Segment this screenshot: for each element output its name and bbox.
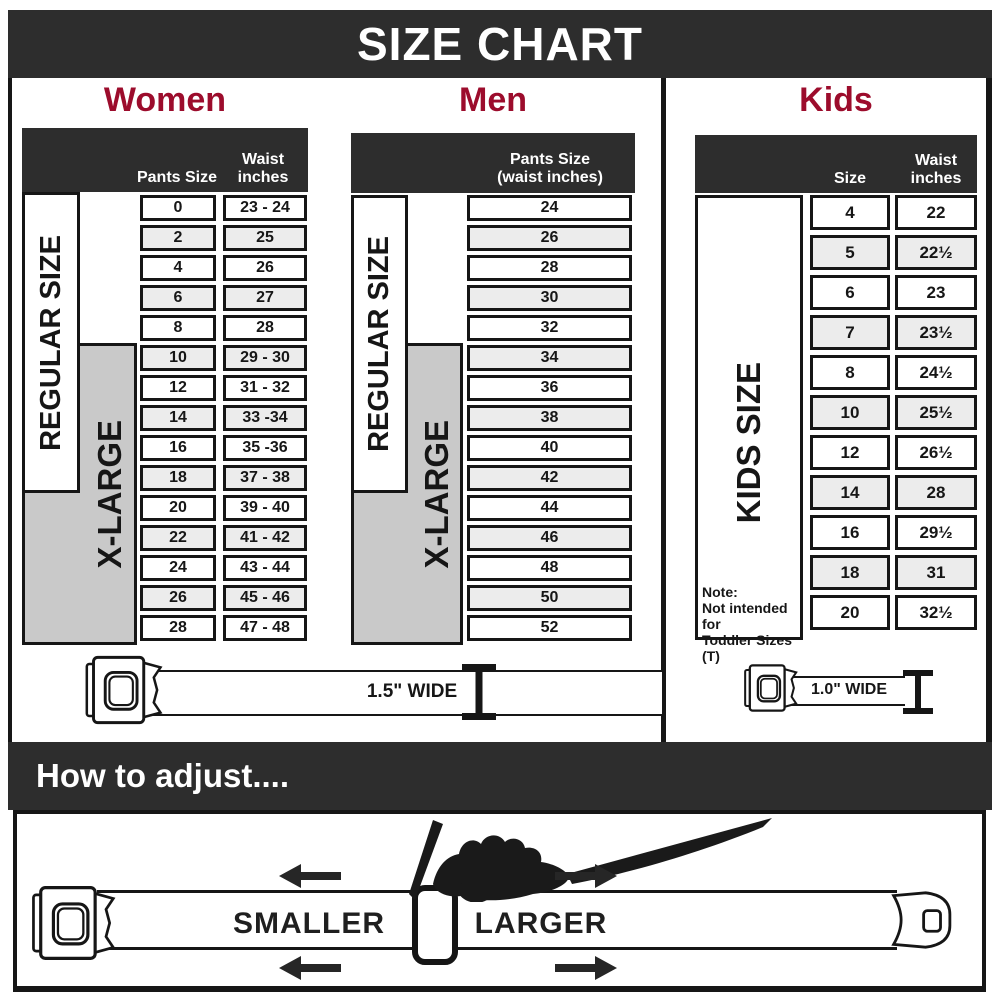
size-cell: 23 - 24 xyxy=(223,195,307,221)
size-cell: 18 xyxy=(140,465,216,491)
kids-size-label: KIDS SIZE xyxy=(730,362,768,523)
women-size-table: 023 - 242254266278281029 - 301231 - 3214… xyxy=(140,195,307,645)
size-cell: 2 xyxy=(140,225,216,251)
size-cell: 6 xyxy=(810,275,890,310)
size-cell: 20 xyxy=(140,495,216,521)
size-cell: 14 xyxy=(810,475,890,510)
men-size-table: 242628303234363840424446485052 xyxy=(467,195,632,645)
men-col-header: Pants Size (waist inches) xyxy=(470,151,630,187)
size-cell: 14 xyxy=(140,405,216,431)
size-cell: 10 xyxy=(810,395,890,430)
size-cell: 12 xyxy=(810,435,890,470)
kids-heading: Kids xyxy=(695,80,977,120)
women-heading: Women xyxy=(22,80,308,120)
size-cell: 10 xyxy=(140,345,216,371)
size-cell: 28 xyxy=(140,615,216,641)
size-cell: 22½ xyxy=(895,235,977,270)
size-cell: 41 - 42 xyxy=(223,525,307,551)
women-col2-header: Waist inches xyxy=(223,151,303,187)
size-cell: 26 xyxy=(467,225,632,251)
size-cell: 23½ xyxy=(895,315,977,350)
size-cell: 24 xyxy=(467,195,632,221)
men-regular-label: REGULAR SIZE xyxy=(363,236,396,452)
men-table-header: Pants Size (waist inches) xyxy=(351,133,635,193)
size-cell: 48 xyxy=(467,555,632,581)
size-cell: 44 xyxy=(467,495,632,521)
size-cell: 30 xyxy=(467,285,632,311)
page-title: SIZE CHART xyxy=(8,10,992,78)
size-cell: 25½ xyxy=(895,395,977,430)
size-cell: 24 xyxy=(140,555,216,581)
size-cell: 22 xyxy=(140,525,216,551)
size-cell: 28 xyxy=(223,315,307,341)
size-cell: 50 xyxy=(467,585,632,611)
kids-table-header: Size Waist inches xyxy=(695,135,977,193)
men-heading: Men xyxy=(351,80,635,120)
size-cell: 28 xyxy=(895,475,977,510)
size-cell: 52 xyxy=(467,615,632,641)
kids-belt-width-label: 1.0" WIDE xyxy=(799,681,899,699)
size-cell: 5 xyxy=(810,235,890,270)
size-cell: 28 xyxy=(467,255,632,281)
seatbelt-buckle-icon xyxy=(744,663,802,713)
size-cell: 23 xyxy=(895,275,977,310)
women-table-header: Pants Size Waist inches xyxy=(22,128,308,192)
kids-col1-header: Size xyxy=(810,170,890,188)
adjust-diagram: SMALLER LARGER xyxy=(13,810,986,992)
women-xlarge-label: X-LARGE xyxy=(91,420,129,569)
size-cell: 31 - 32 xyxy=(223,375,307,401)
width-measure-icon xyxy=(462,664,496,720)
size-cell: 25 xyxy=(223,225,307,251)
size-chart-image: SIZE CHART Women Men Kids Pants Size Wai… xyxy=(0,0,1000,1000)
size-cell: 4 xyxy=(140,255,216,281)
size-cell: 27 xyxy=(223,285,307,311)
size-cell: 0 xyxy=(140,195,216,221)
size-cell: 37 - 38 xyxy=(223,465,307,491)
kids-size-table: 422522½623723½824½1025½1226½14281629½183… xyxy=(810,195,977,635)
size-cell: 33 -34 xyxy=(223,405,307,431)
size-cell: 47 - 48 xyxy=(223,615,307,641)
women-regular-label: REGULAR SIZE xyxy=(35,235,68,451)
size-cell: 42 xyxy=(467,465,632,491)
size-cell: 32 xyxy=(467,315,632,341)
women-regular-box: REGULAR SIZE xyxy=(22,192,80,493)
size-cell: 29½ xyxy=(895,515,977,550)
size-cell: 29 - 30 xyxy=(223,345,307,371)
size-cell: 26 xyxy=(140,585,216,611)
kids-divider xyxy=(661,78,666,742)
larger-label: LARGER xyxy=(461,906,621,942)
size-cell: 46 xyxy=(467,525,632,551)
women-col1-header: Pants Size xyxy=(132,169,222,187)
kids-size-box: KIDS SIZE Note: Not intended for Toddler… xyxy=(695,195,803,640)
men-regular-box: REGULAR SIZE xyxy=(351,195,408,493)
size-cell: 12 xyxy=(140,375,216,401)
left-border xyxy=(8,78,12,742)
size-cell: 6 xyxy=(140,285,216,311)
arrow-right-icon xyxy=(555,955,617,981)
size-cell: 45 - 46 xyxy=(223,585,307,611)
kids-col2-header: Waist inches xyxy=(896,152,976,188)
size-cell: 32½ xyxy=(895,595,977,630)
size-cell: 20 xyxy=(810,595,890,630)
arrow-left-icon xyxy=(279,955,341,981)
width-measure-icon xyxy=(903,670,933,714)
size-cell: 26 xyxy=(223,255,307,281)
size-cell: 36 xyxy=(467,375,632,401)
size-cell: 8 xyxy=(810,355,890,390)
size-cell: 22 xyxy=(895,195,977,230)
belt-tip-icon xyxy=(881,890,955,950)
seatbelt-buckle-icon xyxy=(84,654,170,726)
adjust-heading: How to adjust.... xyxy=(8,742,992,810)
size-cell: 7 xyxy=(810,315,890,350)
size-cell: 18 xyxy=(810,555,890,590)
smaller-label: SMALLER xyxy=(229,906,389,942)
size-cell: 35 -36 xyxy=(223,435,307,461)
seatbelt-buckle-icon xyxy=(31,884,123,962)
right-border xyxy=(986,78,992,742)
size-cell: 24½ xyxy=(895,355,977,390)
size-cell: 43 - 44 xyxy=(223,555,307,581)
kids-note: Note: Not intended for Toddler Sizes (T) xyxy=(702,584,802,664)
size-cell: 38 xyxy=(467,405,632,431)
size-cell: 31 xyxy=(895,555,977,590)
size-cell: 40 xyxy=(467,435,632,461)
size-cell: 34 xyxy=(467,345,632,371)
arrow-left-icon xyxy=(279,863,341,889)
men-xlarge-label: X-LARGE xyxy=(418,420,456,569)
size-cell: 39 - 40 xyxy=(223,495,307,521)
size-cell: 16 xyxy=(140,435,216,461)
size-cell: 26½ xyxy=(895,435,977,470)
size-cell: 8 xyxy=(140,315,216,341)
size-cell: 4 xyxy=(810,195,890,230)
arrow-right-icon xyxy=(555,863,617,889)
size-cell: 16 xyxy=(810,515,890,550)
adult-belt-width-label: 1.5" WIDE xyxy=(362,681,462,703)
